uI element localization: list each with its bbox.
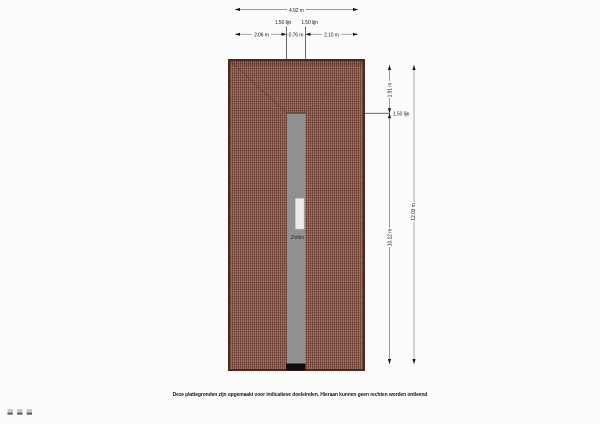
svg-text:1.50 lijn: 1.50 lijn	[275, 20, 292, 26]
svg-text:10.12 m: 10.12 m	[388, 229, 394, 246]
svg-text:Zolder: Zolder	[291, 235, 305, 241]
svg-text:2.10 m: 2.10 m	[324, 33, 339, 39]
svg-text:1.50 lijn: 1.50 lijn	[301, 20, 318, 26]
svg-text:0.76 m: 0.76 m	[289, 33, 304, 39]
svg-text:Deze plattegronden zijn opgema: Deze plattegronden zijn opgemaakt voor i…	[173, 392, 428, 398]
svg-text:2.06 m: 2.06 m	[254, 33, 269, 39]
svg-text:1.91 m: 1.91 m	[388, 83, 394, 98]
svg-text:4.92 m: 4.92 m	[289, 8, 304, 14]
svg-text:12.03 m: 12.03 m	[411, 203, 417, 220]
svg-text:1.50 lijn: 1.50 lijn	[393, 112, 410, 118]
